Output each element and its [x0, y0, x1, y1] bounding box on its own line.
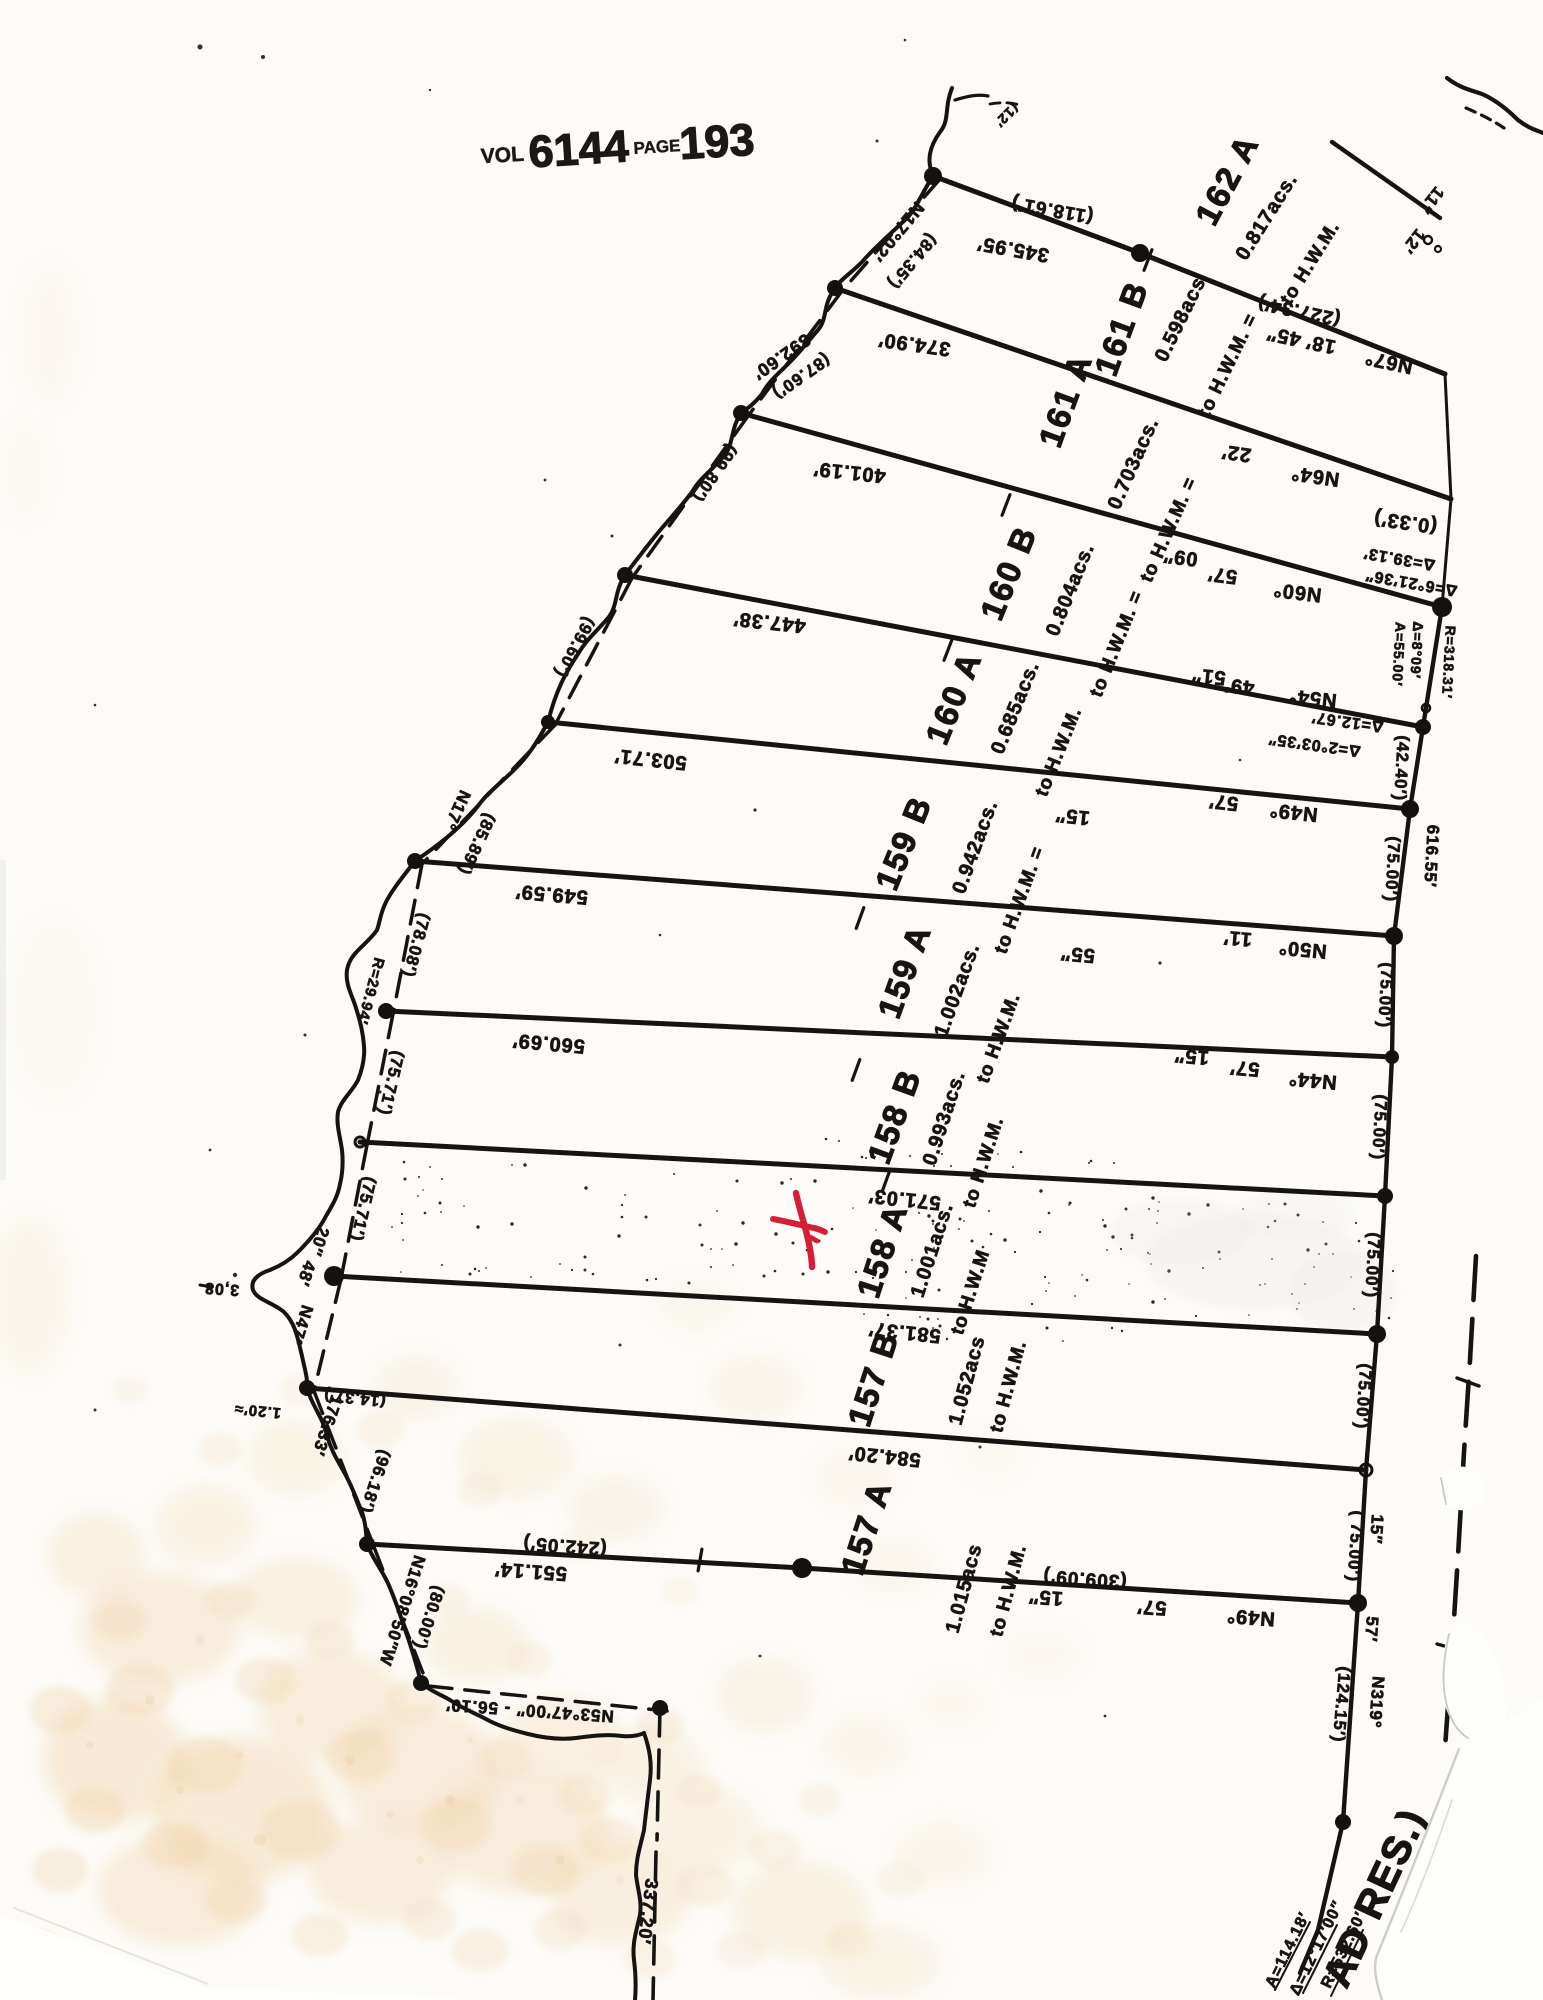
svg-text:11′: 11′	[1222, 926, 1253, 950]
svg-text:57′: 57′	[1206, 562, 1239, 587]
svg-text:57′: 57′	[1136, 1595, 1168, 1619]
svg-text:VOL: VOL	[480, 143, 525, 169]
svg-text:15″: 15″	[1366, 1514, 1387, 1545]
svg-text:N44°: N44°	[1287, 1067, 1337, 1093]
svg-text:51″: 51″	[1190, 663, 1227, 689]
svg-text:(75.00′): (75.00′)	[1361, 1232, 1383, 1299]
svg-text:N49°: N49°	[1226, 1604, 1276, 1629]
svg-text:15″: 15″	[1027, 1585, 1063, 1609]
svg-text:Δ=8°09′: Δ=8°09′	[1407, 621, 1426, 679]
svg-text:57′: 57′	[1361, 1616, 1382, 1643]
svg-text:PAGE: PAGE	[633, 136, 681, 158]
svg-text:49′: 49′	[1223, 673, 1255, 698]
svg-text:15″: 15″	[1054, 803, 1091, 829]
svg-text:6144: 6144	[527, 120, 630, 177]
svg-text:57′: 57′	[1229, 1056, 1261, 1081]
svg-text:15″: 15″	[1173, 1044, 1210, 1069]
svg-text:22′: 22′	[1220, 440, 1253, 466]
svg-text:3,08: 3,08	[204, 1279, 240, 1298]
svg-text:57′: 57′	[1207, 789, 1239, 814]
svg-text:193: 193	[678, 114, 756, 169]
svg-text:(75.00′): (75.00′)	[1381, 836, 1403, 903]
svg-text:A=55.00′: A=55.00′	[1389, 622, 1408, 687]
svg-text:(75.00′): (75.00′)	[1368, 1094, 1390, 1161]
svg-text:(42.40′): (42.40′)	[1390, 735, 1412, 802]
svg-text:N319°: N319°	[1365, 1676, 1388, 1730]
svg-text:55″: 55″	[1059, 942, 1096, 967]
svg-text:616.55′: 616.55′	[1420, 824, 1442, 888]
svg-text:(75.00′): (75.00′)	[1374, 962, 1396, 1029]
svg-text:N50°: N50°	[1277, 936, 1327, 962]
svg-text:09″: 09″	[1162, 544, 1199, 570]
